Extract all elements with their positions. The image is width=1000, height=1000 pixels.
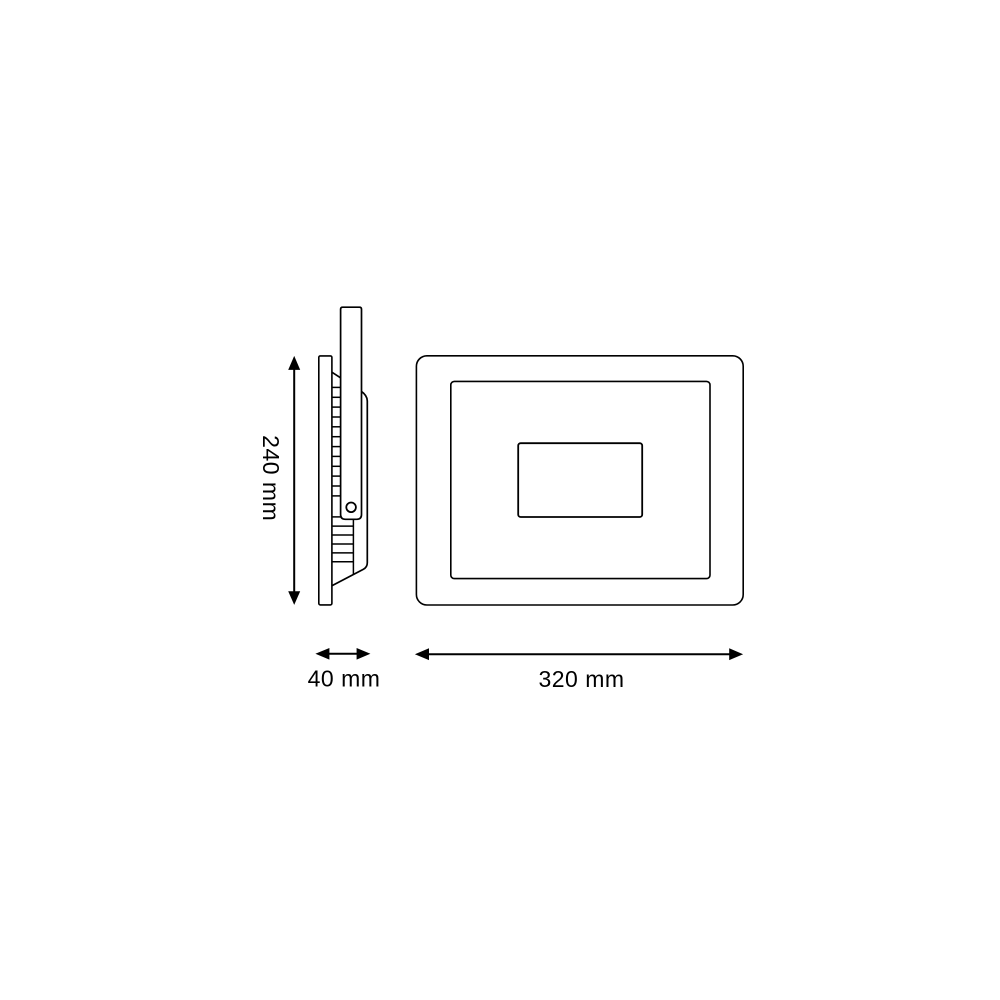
svg-text:40 mm: 40 mm: [308, 666, 381, 692]
svg-text:240 mm: 240 mm: [258, 435, 284, 521]
svg-text:320 mm: 320 mm: [538, 666, 624, 692]
